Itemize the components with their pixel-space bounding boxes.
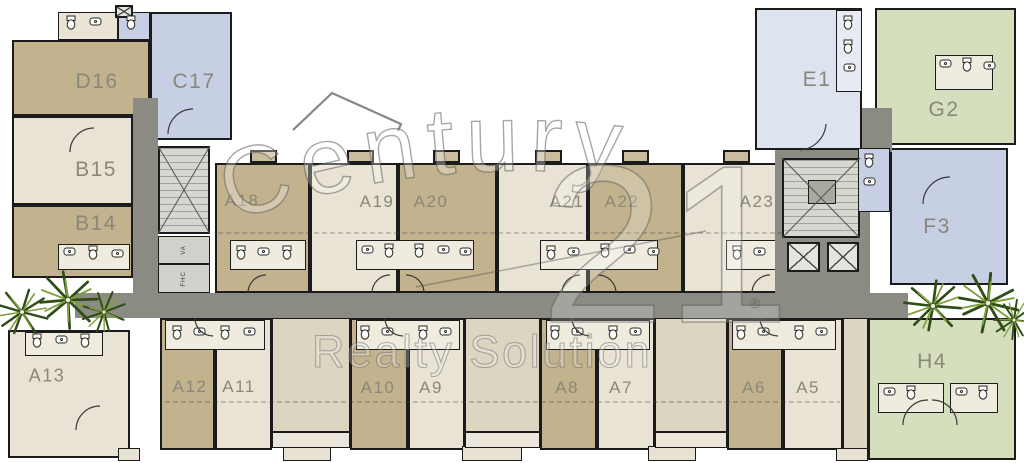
unit-label-A20: A20	[414, 192, 449, 212]
unit-label-A11: A11	[222, 377, 256, 397]
unit-label-A10: A10	[361, 378, 396, 398]
unit-label-B14: B14	[75, 212, 117, 236]
floor-plan-image: VAFHC D16C17B15B14A13A18A19A20A21A22A23A…	[0, 0, 1024, 463]
unit-label-A18: A18	[225, 191, 260, 211]
unit-label-A21: A21	[550, 192, 585, 212]
unit-labels-layer: D16C17B15B14A13A18A19A20A21A22A23A12A11A…	[0, 0, 1024, 463]
unit-label-G2: G2	[928, 98, 959, 122]
unit-label-E1: E1	[803, 68, 832, 92]
unit-label-H4: H4	[917, 350, 947, 374]
unit-label-A12: A12	[173, 377, 208, 397]
unit-label-F3: F3	[923, 215, 951, 239]
unit-label-A23: A23	[740, 192, 775, 212]
unit-label-A7: A7	[609, 378, 633, 398]
unit-label-A6: A6	[742, 378, 766, 398]
unit-label-A9: A9	[419, 378, 443, 398]
unit-label-B15: B15	[75, 158, 117, 182]
unit-label-A8: A8	[555, 378, 579, 398]
unit-label-A13: A13	[29, 366, 66, 387]
unit-label-A5: A5	[796, 378, 820, 398]
unit-label-C17: C17	[172, 70, 215, 94]
unit-label-D16: D16	[75, 70, 118, 94]
unit-label-A22: A22	[605, 192, 640, 212]
unit-label-A19: A19	[360, 192, 395, 212]
